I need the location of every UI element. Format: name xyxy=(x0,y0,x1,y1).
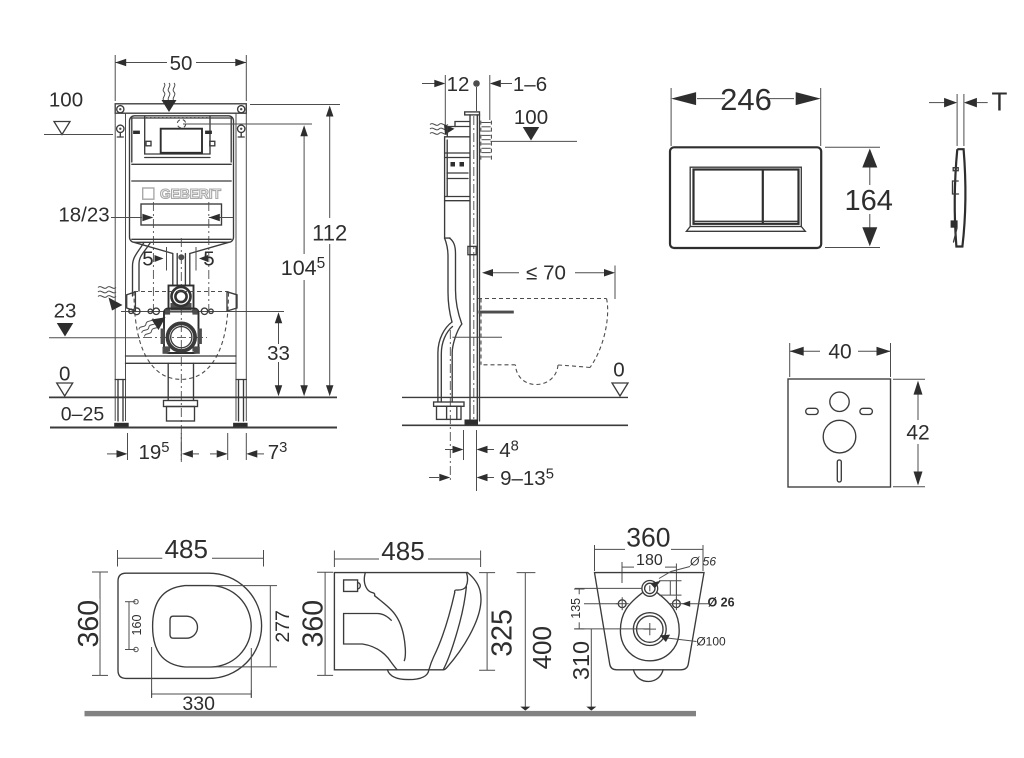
svg-text:1–6: 1–6 xyxy=(513,73,547,96)
svg-text:360: 360 xyxy=(626,523,670,553)
svg-text:246: 246 xyxy=(720,82,772,117)
svg-text:180: 180 xyxy=(636,552,663,569)
svg-text:100: 100 xyxy=(49,88,83,111)
svg-text:400: 400 xyxy=(527,626,557,669)
svg-text:135: 135 xyxy=(569,598,583,619)
svg-text:325: 325 xyxy=(487,609,519,657)
svg-text:485: 485 xyxy=(165,534,208,564)
svg-text:0: 0 xyxy=(59,362,70,385)
svg-text:40: 40 xyxy=(828,341,851,364)
svg-text:48: 48 xyxy=(499,438,519,462)
svg-text:360: 360 xyxy=(73,600,105,648)
svg-text:112: 112 xyxy=(312,221,347,246)
svg-text:23: 23 xyxy=(54,300,77,323)
svg-text:100: 100 xyxy=(514,106,548,129)
svg-text:0–25: 0–25 xyxy=(61,404,105,426)
svg-text:9–135: 9–135 xyxy=(500,466,554,490)
svg-text:42: 42 xyxy=(906,422,929,445)
svg-text:1045: 1045 xyxy=(281,255,325,280)
svg-text:Ø 26: Ø 26 xyxy=(707,596,734,610)
svg-text:GEBERIT: GEBERIT xyxy=(160,186,222,201)
svg-text:164: 164 xyxy=(845,185,893,217)
svg-text:195: 195 xyxy=(138,440,169,464)
svg-text:Ø 56: Ø 56 xyxy=(689,555,716,569)
svg-text:485: 485 xyxy=(381,536,424,566)
svg-text:73: 73 xyxy=(268,440,288,464)
svg-text:18/23: 18/23 xyxy=(58,203,109,226)
svg-text:160: 160 xyxy=(130,615,144,636)
svg-text:277: 277 xyxy=(272,610,294,643)
svg-text:12: 12 xyxy=(447,73,470,96)
svg-text:T: T xyxy=(992,86,1008,116)
svg-text:≤ 70: ≤ 70 xyxy=(526,262,566,285)
svg-text:50: 50 xyxy=(170,52,193,75)
svg-text:33: 33 xyxy=(267,342,290,365)
svg-text:0: 0 xyxy=(613,358,624,381)
svg-text:310: 310 xyxy=(568,641,594,680)
svg-text:Ø100: Ø100 xyxy=(696,635,726,649)
svg-text:360: 360 xyxy=(298,600,330,648)
